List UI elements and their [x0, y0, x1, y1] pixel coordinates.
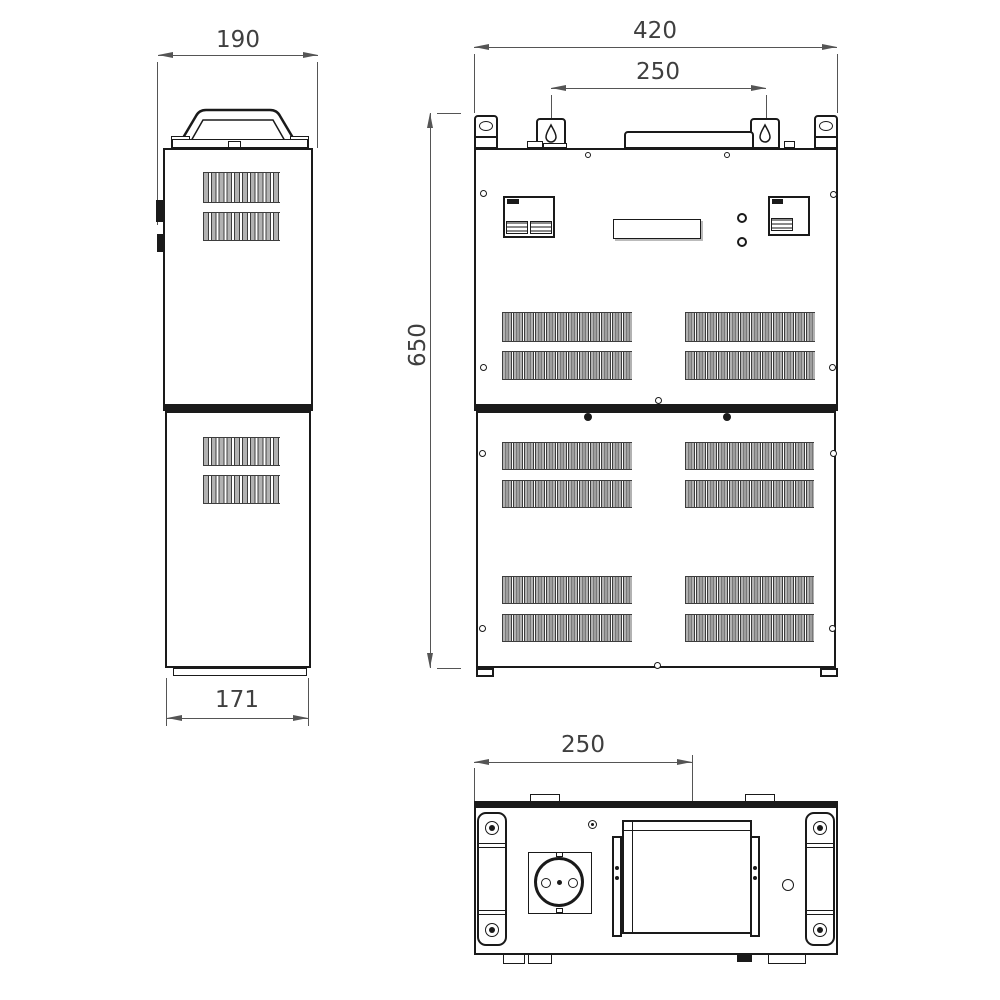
bottom-front-edge	[474, 801, 838, 808]
rail-seam	[479, 847, 505, 848]
dim-label-171: 171	[177, 688, 297, 712]
foot	[503, 954, 525, 964]
dim-extension-line	[837, 54, 838, 113]
rail-screw-center	[489, 927, 495, 933]
dim-extension-line	[437, 668, 461, 669]
dim-arrow-right	[303, 52, 318, 58]
rail-seam	[807, 847, 833, 848]
dim-arrow-left	[474, 44, 489, 50]
side-hinge-nub	[156, 200, 164, 222]
rail-screw-center	[489, 825, 495, 831]
dim-line-250-bottom	[474, 762, 692, 763]
screw	[830, 191, 837, 198]
carry-handle-front	[624, 131, 754, 149]
vent-grille	[502, 442, 632, 470]
cover-edge-line	[632, 821, 633, 933]
vent-grille	[203, 212, 280, 241]
cover-flange-left	[612, 836, 622, 937]
socket-notch	[556, 908, 563, 913]
dim-arrow-left	[474, 759, 489, 765]
foot	[820, 668, 838, 677]
socket-pin-hole	[568, 878, 578, 888]
dim-arrow-down	[427, 653, 433, 668]
screw	[830, 450, 837, 457]
cover-flange-right	[750, 836, 760, 937]
dim-label-250-bottom: 250	[523, 733, 643, 757]
dim-extension-line	[437, 113, 461, 114]
dim-line-250-top	[551, 88, 766, 89]
dim-extension-line	[317, 62, 318, 148]
panel-label	[772, 199, 783, 204]
vent-grille	[502, 614, 632, 642]
keyhole-teardrop	[546, 125, 556, 142]
screw	[480, 190, 487, 197]
dim-line-190	[158, 55, 318, 56]
screw	[723, 413, 731, 421]
keyhole-slot	[755, 122, 775, 146]
rail-seam	[479, 843, 505, 844]
socket-center-dot	[557, 880, 562, 885]
vent-grille	[203, 475, 280, 504]
screw	[585, 152, 591, 158]
screw	[584, 413, 592, 421]
side-base-plate	[173, 668, 307, 676]
keyhole-teardrop	[760, 125, 770, 142]
rail-seam	[479, 910, 505, 911]
foot	[528, 954, 552, 964]
handle-base-notch	[228, 141, 241, 148]
mounting-hole	[782, 879, 794, 891]
screw	[724, 152, 730, 158]
dim-line-420	[474, 47, 837, 48]
flange-screw	[753, 876, 757, 880]
screw-center	[591, 823, 594, 826]
vent-grille	[203, 172, 280, 203]
dim-arrow-left	[167, 715, 182, 721]
screw	[654, 662, 661, 669]
vent-grille	[685, 480, 814, 508]
screw	[655, 397, 662, 404]
vent-grille	[685, 442, 814, 470]
display-window	[613, 219, 701, 239]
foot	[768, 954, 806, 964]
vent-grille	[203, 437, 280, 466]
flange-screw	[615, 866, 619, 870]
breaker-switch	[771, 218, 793, 231]
vent-grille	[502, 480, 632, 508]
dim-arrow-right	[677, 759, 692, 765]
vent-grille	[685, 614, 814, 642]
socket-pin-hole	[541, 878, 551, 888]
foot-dark	[737, 953, 752, 962]
bracket-fold-line	[816, 136, 836, 138]
bracket-step	[527, 141, 543, 148]
dim-extension-line	[474, 54, 475, 113]
flange-screw	[753, 866, 757, 870]
dim-arrow-left	[158, 52, 173, 58]
dim-line-171	[167, 718, 308, 719]
dim-extension-line	[474, 768, 475, 801]
dim-arrow-right	[293, 715, 308, 721]
vent-grille	[502, 312, 632, 342]
dim-label-250-top: 250	[598, 60, 718, 84]
dim-arrow-up	[427, 113, 433, 128]
vent-grille	[502, 351, 632, 380]
dim-label-190: 190	[178, 28, 298, 52]
bracket-notch	[784, 141, 795, 148]
terminal-cover	[622, 820, 752, 934]
rail-screw-center	[817, 927, 823, 933]
bracket-fold-line	[476, 136, 496, 138]
panel-label	[507, 199, 519, 204]
oval-hole	[819, 121, 833, 131]
dim-arrow-right	[822, 44, 837, 50]
vent-grille	[685, 351, 815, 380]
screw	[479, 625, 486, 632]
dim-label-420: 420	[595, 19, 715, 43]
dim-line-650	[430, 113, 431, 668]
rail-seam	[807, 843, 833, 844]
rail-seam	[807, 910, 833, 911]
vent-grille	[502, 576, 632, 604]
control-button	[737, 213, 747, 223]
rail-seam	[807, 914, 833, 915]
vent-grille	[685, 576, 814, 604]
oval-hole	[479, 121, 493, 131]
dim-extension-line	[308, 678, 309, 726]
breaker-switch	[530, 221, 552, 234]
side-hinge-nub	[157, 234, 164, 252]
screw	[479, 450, 486, 457]
screw	[829, 625, 836, 632]
flange-screw	[615, 876, 619, 880]
cover-lip-line	[623, 830, 751, 831]
rail-seam	[479, 914, 505, 915]
screw	[829, 364, 836, 371]
screw	[480, 364, 487, 371]
dim-arrow-left	[551, 85, 566, 91]
technical-drawing-canvas: 190 171	[0, 0, 1000, 1000]
breaker-switch	[506, 221, 528, 234]
control-button	[737, 237, 747, 247]
dim-arrow-right	[751, 85, 766, 91]
vent-grille	[685, 312, 815, 342]
rail-screw-center	[817, 825, 823, 831]
foot	[476, 668, 494, 677]
